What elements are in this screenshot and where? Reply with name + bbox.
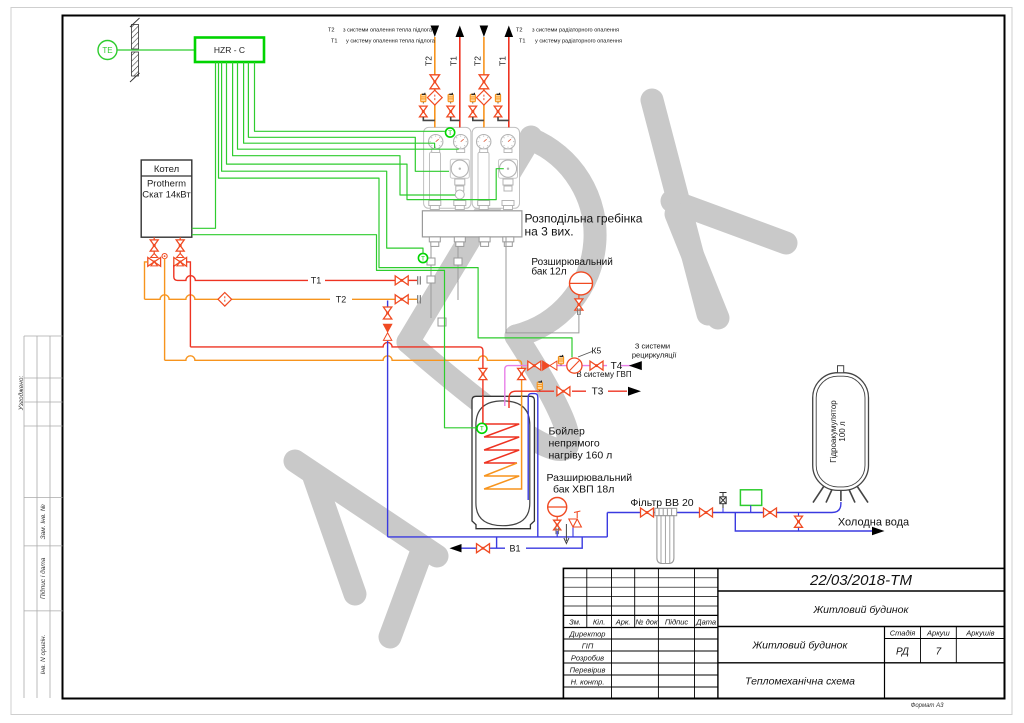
svg-text:Дата: Дата xyxy=(695,618,716,627)
svg-text:Т1: Т1 xyxy=(331,39,338,45)
svg-text:В1: В1 xyxy=(509,544,520,554)
svg-text:бак ХВП 18л: бак ХВП 18л xyxy=(553,484,614,496)
svg-text:з системи радіаторного опаленн: з системи радіаторного опалення xyxy=(532,28,619,34)
svg-text:Розподільна гребінка: Розподільна гребінка xyxy=(525,211,643,225)
svg-text:ТЕ: ТЕ xyxy=(102,46,112,55)
svg-text:T: T xyxy=(448,130,452,137)
svg-text:7: 7 xyxy=(936,647,942,658)
svg-text:Н. контр.: Н. контр. xyxy=(571,678,605,687)
svg-text:В систему ГВП: В систему ГВП xyxy=(576,370,632,379)
svg-text:Холодна вода: Холодна вода xyxy=(838,517,910,529)
svg-text:Фільтр ВВ 20: Фільтр ВВ 20 xyxy=(630,497,693,509)
svg-text:Узгоджено:: Узгоджено: xyxy=(17,376,25,412)
svg-text:Т2: Т2 xyxy=(424,56,434,66)
svg-text:Гідроакумулятор: Гідроакумулятор xyxy=(829,400,838,463)
svg-text:22/03/2018-ТМ: 22/03/2018-ТМ xyxy=(809,572,912,589)
svg-text:Підпис: Підпис xyxy=(665,618,689,627)
svg-text:Формат А3: Формат А3 xyxy=(911,703,944,709)
svg-text:Розробив: Розробив xyxy=(571,654,604,663)
svg-text:Житловий будинок: Житловий будинок xyxy=(813,604,910,616)
svg-text:нагріву 160 л: нагріву 160 л xyxy=(549,450,613,462)
svg-text:ГІП: ГІП xyxy=(582,642,594,651)
svg-text:Protherm: Protherm xyxy=(147,179,186,190)
svg-text:на 3 вих.: на 3 вих. xyxy=(525,224,574,238)
svg-text:Директор: Директор xyxy=(569,630,606,639)
svg-text:рециркуляції: рециркуляції xyxy=(632,351,677,360)
svg-text:РД: РД xyxy=(896,647,909,658)
svg-text:Аркушів: Аркушів xyxy=(965,629,994,638)
svg-text:Кіл.: Кіл. xyxy=(593,618,605,627)
svg-text:Т2: Т2 xyxy=(516,28,523,34)
svg-text:Підпис і дата: Підпис і дата xyxy=(39,557,47,599)
svg-text:Аркуш: Аркуш xyxy=(926,629,950,638)
svg-text:Т2: Т2 xyxy=(328,28,335,34)
svg-text:T: T xyxy=(480,426,484,433)
svg-text:бак 12л: бак 12л xyxy=(531,266,566,278)
svg-text:Т1: Т1 xyxy=(519,39,526,45)
svg-text:Зам. Інв. №: Зам. Інв. № xyxy=(40,504,47,539)
svg-text:Стадія: Стадія xyxy=(890,629,916,638)
svg-text:Т4: Т4 xyxy=(611,361,623,372)
svg-text:Котел: Котел xyxy=(154,164,179,175)
svg-text:З системи: З системи xyxy=(635,342,670,351)
svg-text:Тепломеханічна схема: Тепломеханічна схема xyxy=(745,676,855,688)
svg-text:100 л: 100 л xyxy=(838,421,847,442)
svg-text:К5: К5 xyxy=(592,346,602,356)
svg-text:Скат 14кВт: Скат 14кВт xyxy=(142,190,191,201)
svg-text:Зм.: Зм. xyxy=(569,618,581,627)
svg-text:Перевірив: Перевірив xyxy=(570,666,606,675)
svg-text:Арк.: Арк. xyxy=(615,618,631,627)
svg-text:Житловий будинок: Житловий будинок xyxy=(752,640,849,652)
svg-text:у систему опалення тепла підло: у систему опалення тепла підлога xyxy=(346,39,436,45)
svg-text:непрямого: непрямого xyxy=(549,438,600,450)
svg-text:T: T xyxy=(421,255,425,262)
svg-text:Т1: Т1 xyxy=(449,56,459,66)
svg-text:Разширювальний: Разширювальний xyxy=(547,472,633,484)
svg-text:Інв. N оригін.: Інв. N оригін. xyxy=(39,634,47,674)
svg-text:Т3: Т3 xyxy=(592,387,604,398)
svg-text:Т2: Т2 xyxy=(336,295,347,305)
svg-text:HZR - C: HZR - C xyxy=(214,45,245,55)
svg-text:Т2: Т2 xyxy=(473,56,483,66)
svg-text:Бойлер: Бойлер xyxy=(549,426,586,438)
svg-text:Т1: Т1 xyxy=(311,276,322,286)
svg-text:у систему радіаторного опаленн: у систему радіаторного опалення xyxy=(535,39,622,45)
svg-text:з системи опалення тепла підл: з системи опалення тепла підлога xyxy=(343,28,433,34)
svg-text:Т1: Т1 xyxy=(498,56,508,66)
svg-text:№ док: № док xyxy=(635,618,658,627)
